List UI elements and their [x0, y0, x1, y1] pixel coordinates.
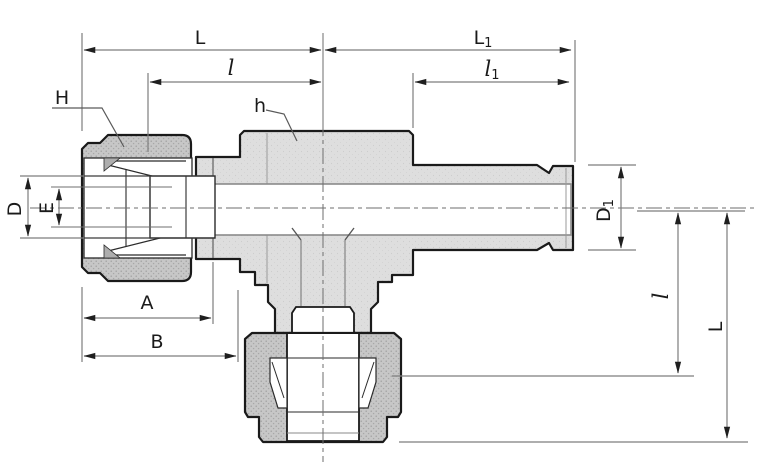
tube-fitting-drawing: L L1 l l1 H h D E D1 l L A B	[0, 0, 763, 475]
label-l-right: l	[649, 293, 673, 300]
label-A: A	[141, 292, 154, 314]
left-tube	[150, 176, 215, 238]
fitting-body-group	[196, 131, 573, 333]
label-D1: D1	[593, 199, 617, 222]
label-L-top: L	[195, 27, 206, 49]
label-L1-top: L1	[474, 27, 493, 51]
label-h: h	[254, 95, 266, 117]
label-D: D	[4, 202, 26, 217]
through-bore	[214, 184, 571, 235]
technical-drawing-page: L L1 l l1 H h D E D1 l L A B	[0, 0, 763, 475]
label-L-right: L	[705, 321, 727, 332]
label-H: H	[55, 87, 69, 109]
label-l1-top: l1	[485, 57, 500, 83]
label-l-top: l	[228, 56, 235, 80]
label-B: B	[150, 331, 163, 353]
label-E: E	[36, 202, 58, 214]
